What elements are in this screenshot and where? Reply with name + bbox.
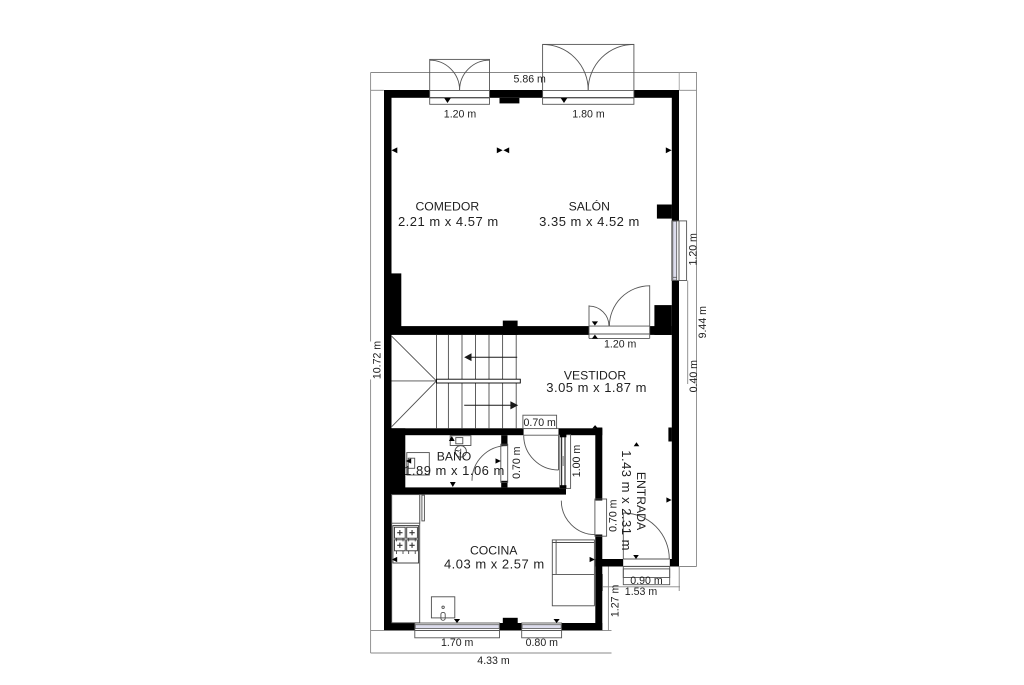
svg-text:1.27 m: 1.27 m (610, 585, 622, 618)
svg-text:0.70 m: 0.70 m (511, 446, 523, 479)
svg-text:0.70 m: 0.70 m (608, 499, 620, 532)
svg-text:1.43 m x 2.31 m: 1.43 m x 2.31 m (619, 450, 634, 551)
svg-text:0.90 m: 0.90 m (630, 575, 663, 587)
svg-text:BAÑO: BAÑO (437, 450, 472, 464)
svg-text:COCINA: COCINA (470, 544, 518, 558)
svg-text:4.03 m x 2.57 m: 4.03 m x 2.57 m (444, 556, 545, 571)
svg-text:5.86 m: 5.86 m (514, 73, 547, 85)
svg-text:4.33 m: 4.33 m (477, 655, 510, 667)
svg-text:0.70 m: 0.70 m (524, 417, 557, 429)
svg-text:SALÓN: SALÓN (569, 199, 610, 214)
svg-text:10.72 m: 10.72 m (372, 341, 384, 379)
svg-text:1.00 m: 1.00 m (571, 445, 583, 478)
svg-text:1.53 m: 1.53 m (625, 586, 658, 598)
svg-text:2.21 m x 4.57 m: 2.21 m x 4.57 m (398, 214, 499, 229)
svg-text:3.35 m x 4.52 m: 3.35 m x 4.52 m (539, 214, 640, 229)
svg-text:1.20 m: 1.20 m (688, 233, 700, 266)
svg-text:0.80 m: 0.80 m (526, 637, 559, 649)
svg-text:1.80 m: 1.80 m (572, 109, 605, 121)
svg-text:COMEDOR: COMEDOR (415, 200, 479, 214)
svg-text:1.70 m: 1.70 m (441, 637, 474, 649)
svg-text:ENTRADA: ENTRADA (634, 472, 648, 531)
svg-text:1.20 m: 1.20 m (604, 339, 637, 351)
svg-text:1.20 m: 1.20 m (444, 109, 477, 121)
svg-text:9.44 m: 9.44 m (697, 306, 709, 339)
svg-text:0.40 m: 0.40 m (688, 360, 700, 393)
svg-text:3.05 m x 1.87 m: 3.05 m x 1.87 m (546, 380, 647, 395)
svg-text:1.89 m x 1.06 m: 1.89 m x 1.06 m (404, 463, 505, 478)
